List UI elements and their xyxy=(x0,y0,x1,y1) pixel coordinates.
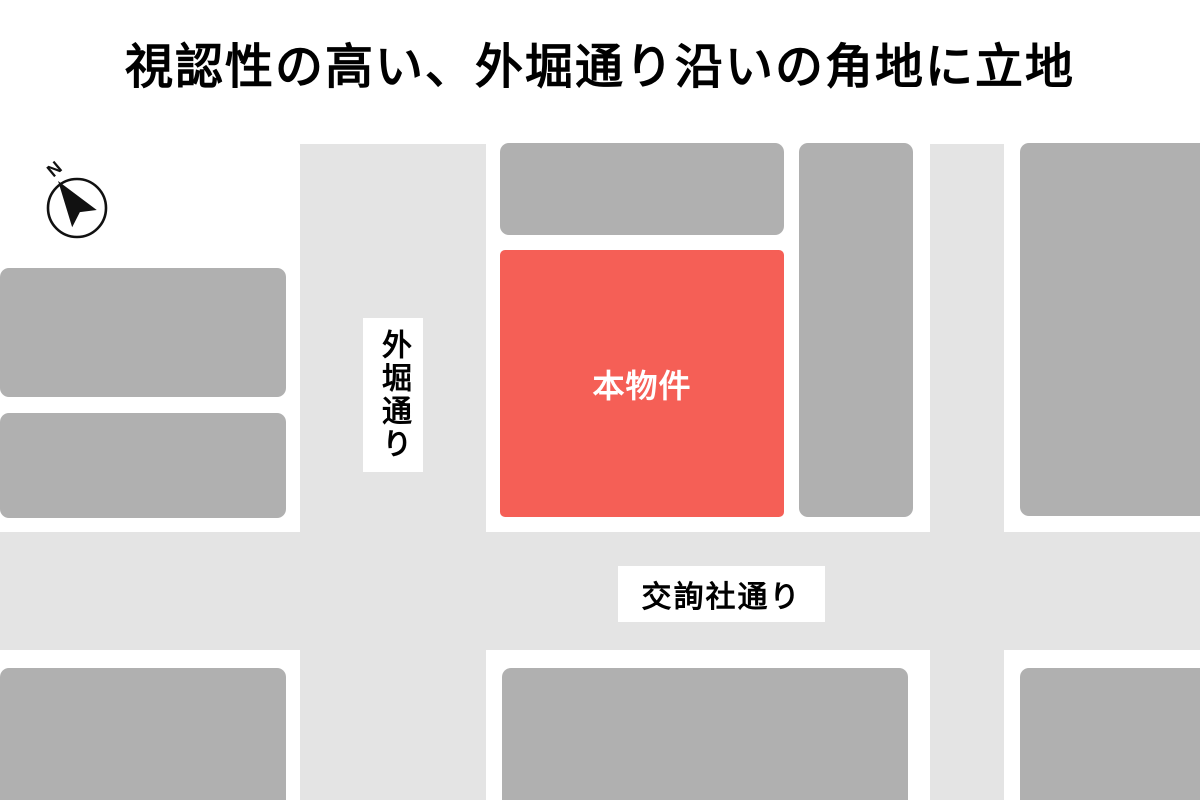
page-title: 視認性の高い、外堀通り沿いの角地に立地 xyxy=(0,36,1200,100)
street-label-kojunsha-text: 交詢社通り xyxy=(642,572,802,616)
compass-north-icon: N xyxy=(34,160,122,248)
sotobori-street-road xyxy=(300,144,486,800)
street-label-sotobori: 外堀通り xyxy=(363,318,423,472)
building-block xyxy=(0,668,286,800)
building-block xyxy=(0,413,286,518)
property-label: 本物件 xyxy=(592,361,691,407)
street-label-kojunsha: 交詢社通り xyxy=(618,566,825,622)
building-block xyxy=(0,268,286,397)
property-block: 本物件 xyxy=(500,250,784,517)
location-map: 視認性の高い、外堀通り沿いの角地に立地 本物件 外堀通り 交詢社通り N xyxy=(0,0,1200,800)
building-block xyxy=(502,668,908,800)
street-label-sotobori-text: 外堀通り xyxy=(371,329,415,461)
east-side-street-road xyxy=(930,144,1004,800)
building-block xyxy=(1020,143,1200,516)
compass-n-label: N xyxy=(43,160,66,181)
building-block xyxy=(1020,668,1200,800)
building-block xyxy=(799,143,913,517)
building-block xyxy=(500,143,784,235)
kojunsha-street-road xyxy=(0,532,1200,650)
